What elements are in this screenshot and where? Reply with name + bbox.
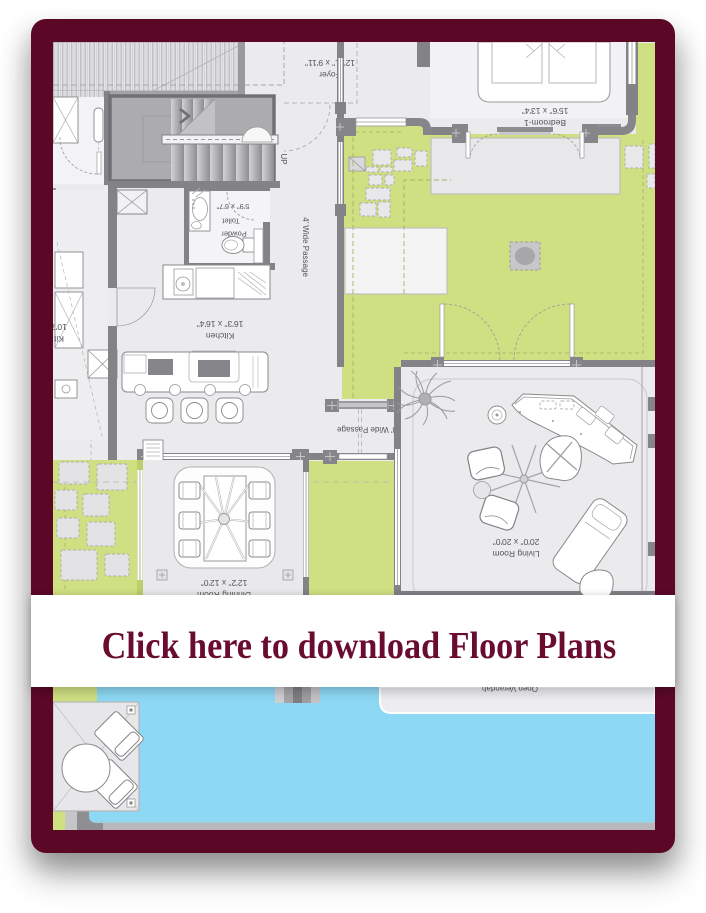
svg-text:12'2" x 12'0": 12'2" x 12'0" [201,578,248,588]
svg-text:UP: UP [279,153,288,164]
svg-text:10'7: 10'7 [53,322,67,332]
svg-text:Bedroom-1: Bedroom-1 [524,118,566,128]
svg-text:Kitchen: Kitchen [206,331,235,341]
svg-text:Living Room: Living Room [492,549,539,559]
svg-text:5'9" x 6'7": 5'9" x 6'7" [216,202,249,211]
svg-text:4' Wide Passage: 4' Wide Passage [301,217,310,277]
svg-text:12'11" x 9'11": 12'11" x 9'11" [305,58,355,68]
svg-text:3' Wide Passage: 3' Wide Passage [337,425,397,434]
svg-text:15'6" x 13'4": 15'6" x 13'4" [522,106,569,116]
svg-text:Toilet: Toilet [221,217,239,226]
svg-text:Kit: Kit [53,334,64,344]
svg-text:16'3" x 16'4": 16'3" x 16'4" [197,319,244,329]
svg-text:Powder: Powder [221,230,247,239]
svg-text:20'0" x 20'0": 20'0" x 20'0" [493,537,540,547]
